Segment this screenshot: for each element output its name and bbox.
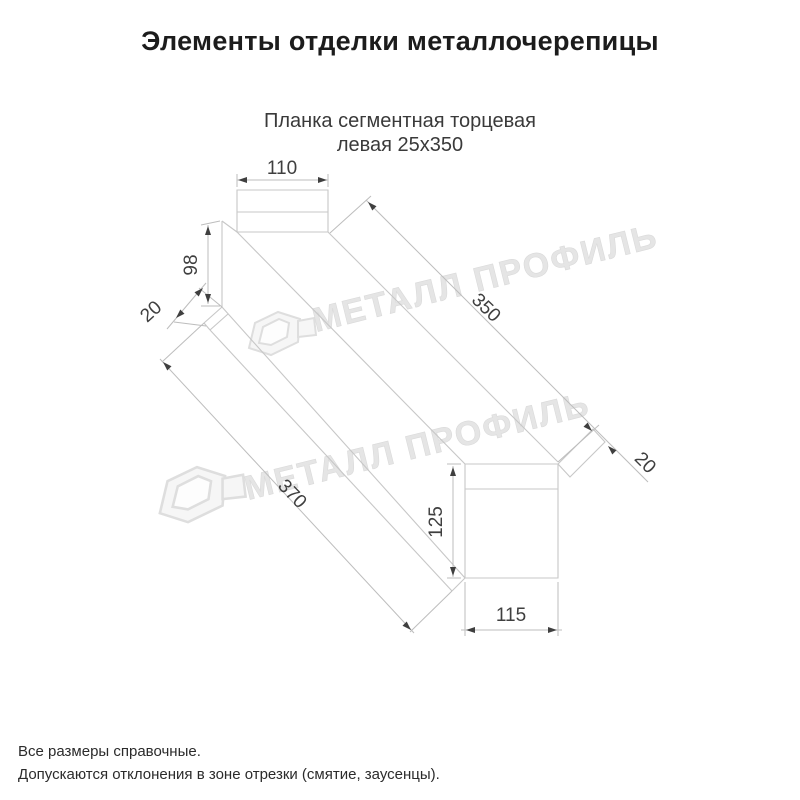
footer-note-1: Все размеры справочные.	[18, 740, 440, 763]
dim-left-height: 98	[181, 254, 202, 275]
dim-left-lip: 20	[136, 297, 166, 327]
watermark-lower: МЕТАЛЛ ПРОФИЛЬ	[160, 385, 594, 522]
dim-right-height: 125	[426, 506, 447, 538]
dim-right-lip: 20	[630, 448, 660, 478]
footer-notes: Все размеры справочные. Допускаются откл…	[18, 740, 440, 786]
technical-drawing: МЕТАЛЛ ПРОФИЛЬ МЕТАЛЛ ПРОФИЛЬ	[0, 0, 800, 800]
dim-right-width: 115	[496, 605, 526, 626]
dim-flange-width: 110	[267, 158, 297, 179]
page: Элементы отделки металлочерепицы Планка …	[0, 0, 800, 800]
footer-note-2: Допускаются отклонения в зоне отрезки (с…	[18, 763, 440, 786]
watermark-upper: МЕТАЛЛ ПРОФИЛЬ	[249, 217, 662, 355]
brand-house-icon	[160, 467, 246, 522]
